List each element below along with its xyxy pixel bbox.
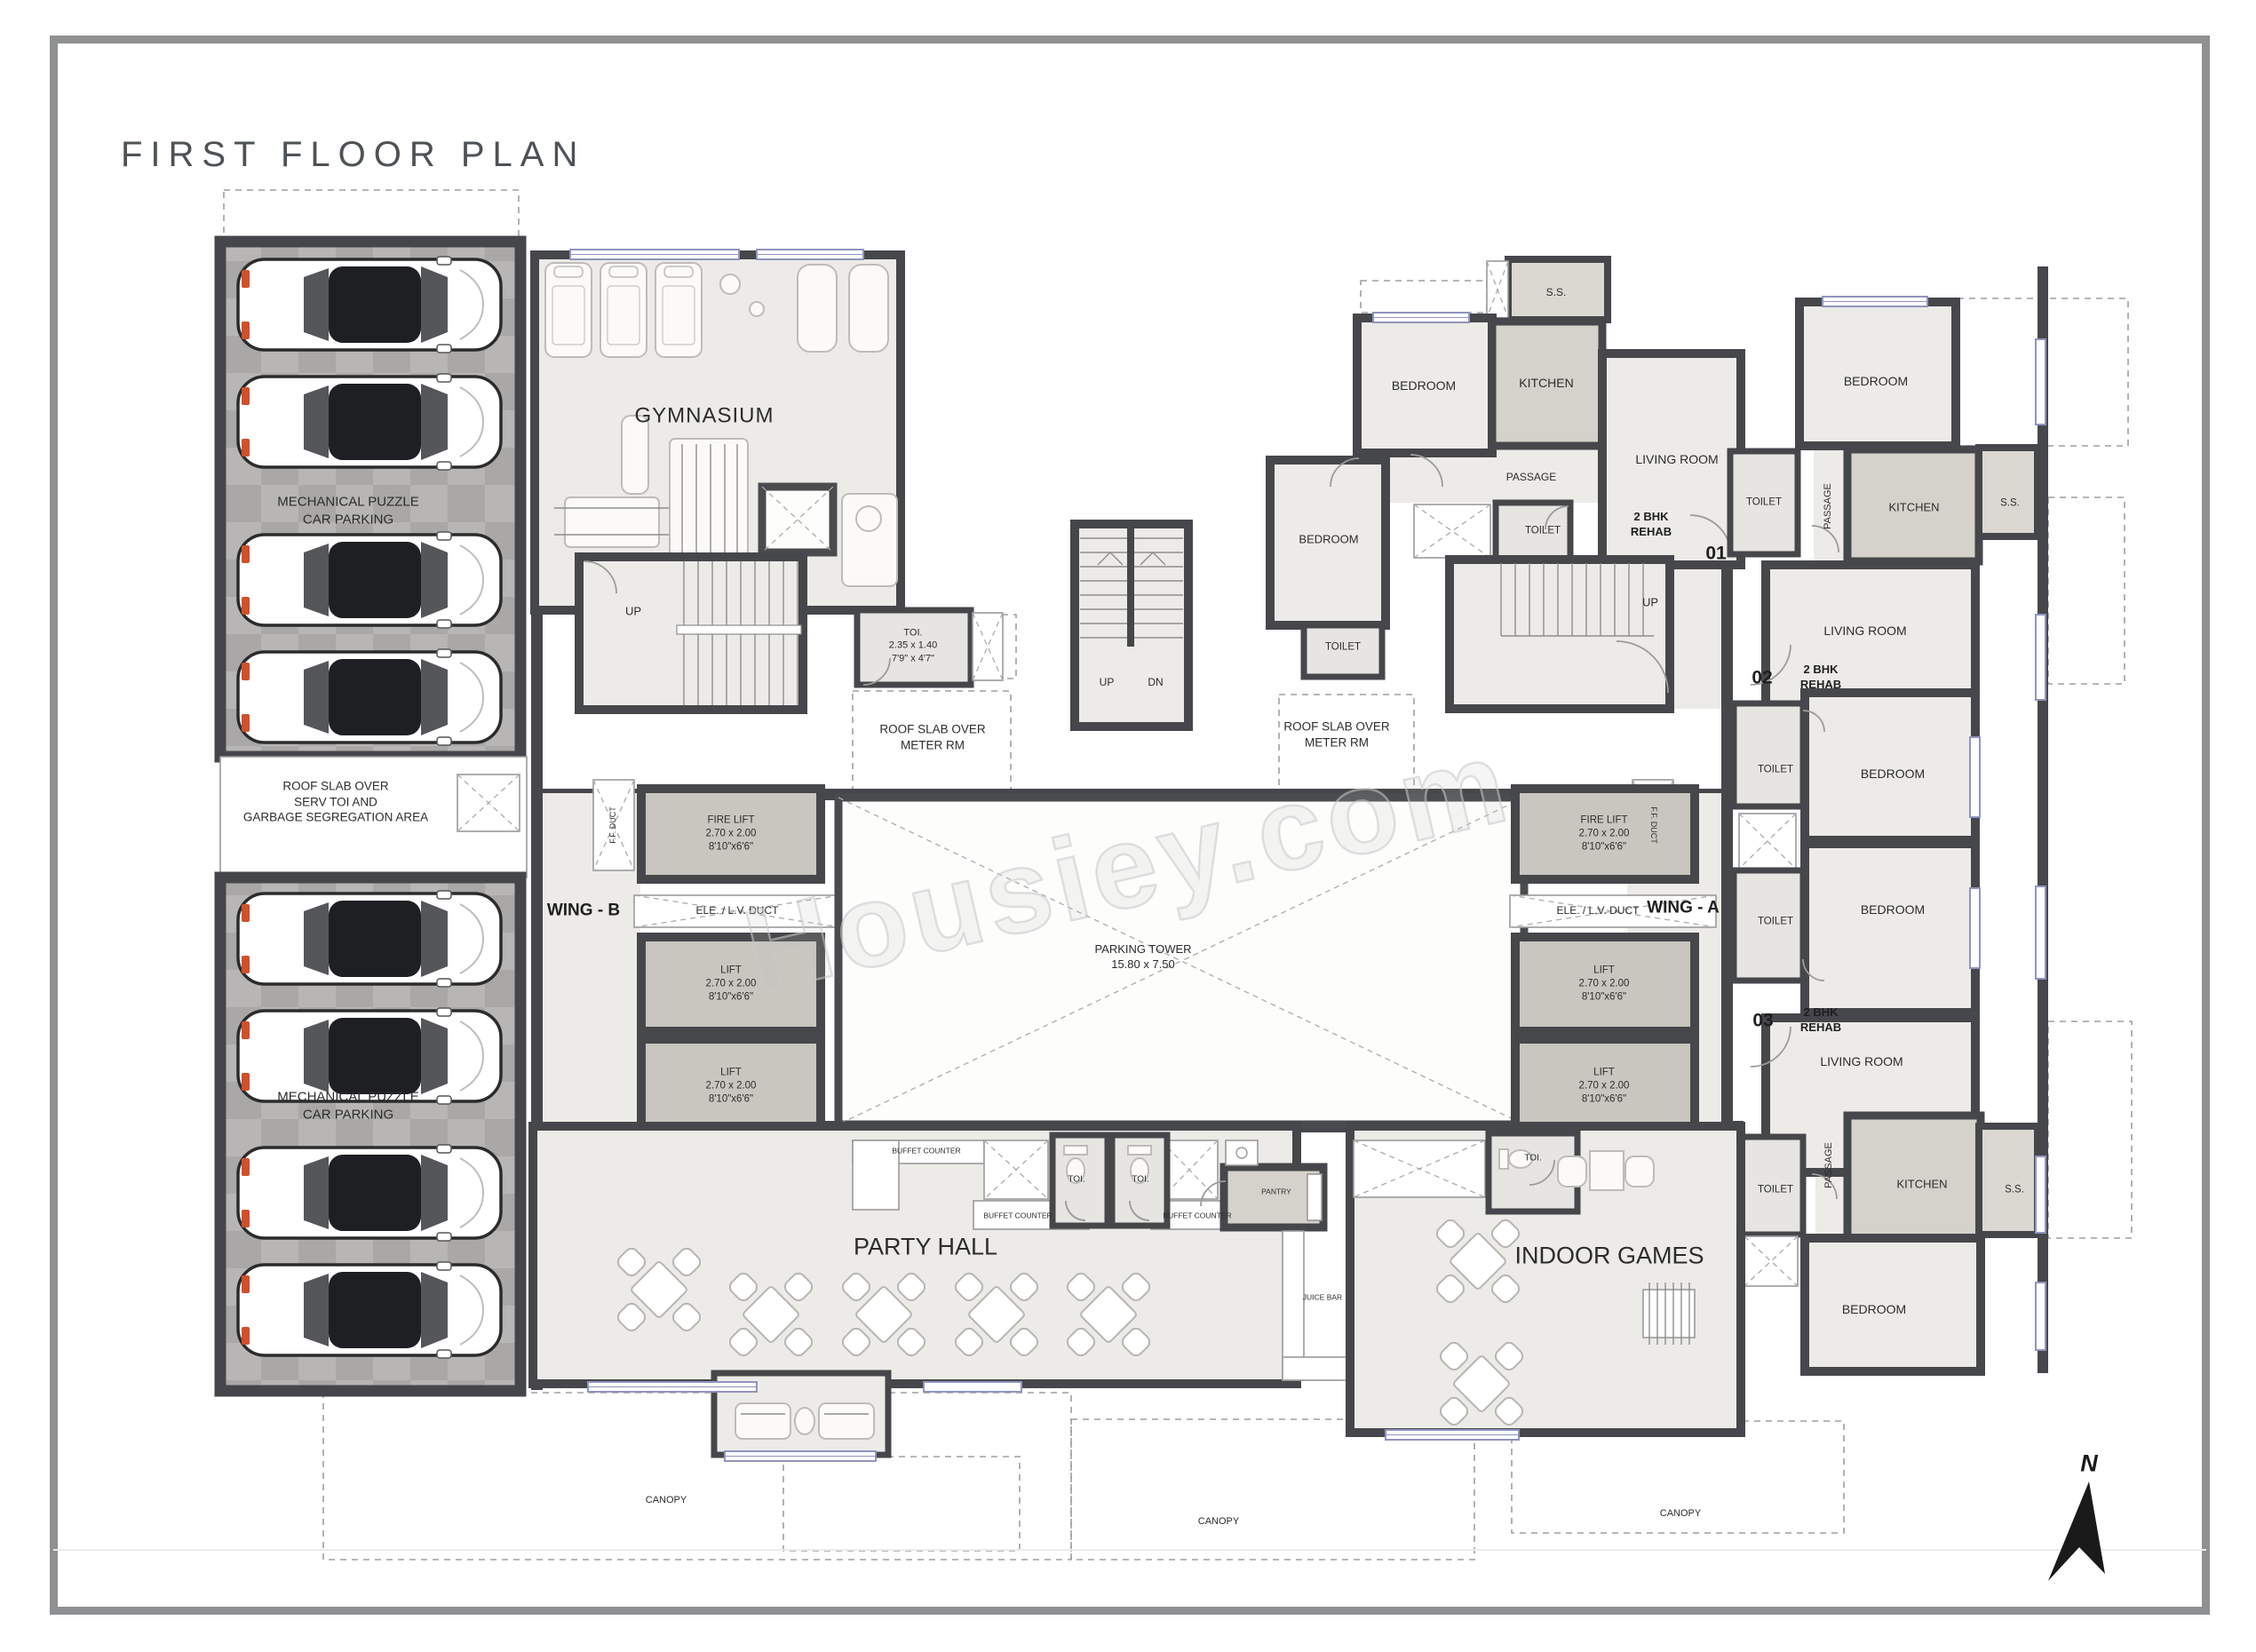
north-arrow-icon — [2048, 1481, 2105, 1581]
fire-lift-winga — [1515, 789, 1695, 879]
roof-slab-garbage-area — [220, 757, 527, 878]
wing-a-lift-core — [1510, 780, 1716, 1133]
north-label: N — [2080, 1450, 2098, 1478]
party-hall — [533, 1126, 1350, 1384]
stair-central — [1075, 524, 1188, 727]
lift2-winga — [1515, 1039, 1695, 1133]
lift1-winga — [1515, 937, 1695, 1031]
fire-lift-wingb — [641, 789, 821, 879]
meter-room-outline-left — [853, 691, 1011, 803]
toi-room — [857, 610, 1003, 685]
canopy-outline-left — [323, 1393, 1071, 1560]
mechanical-parking-top — [220, 242, 520, 757]
lift2-wingb — [641, 1039, 821, 1133]
stair-right — [1450, 560, 1670, 709]
mechanical-parking-bottom — [220, 878, 520, 1391]
floor-plan-page: FIRST FLOOR PLAN — [0, 0, 2256, 1652]
canopy-outline-right — [1512, 1421, 1844, 1533]
unit-02 — [1730, 302, 2038, 705]
stair-left — [579, 557, 803, 710]
indoor-games-room — [1350, 1126, 1741, 1433]
unit-03 — [1732, 1018, 2038, 1371]
foosball-table — [1643, 1290, 1695, 1338]
unit-02-03-bedrooms — [1734, 693, 1975, 1013]
